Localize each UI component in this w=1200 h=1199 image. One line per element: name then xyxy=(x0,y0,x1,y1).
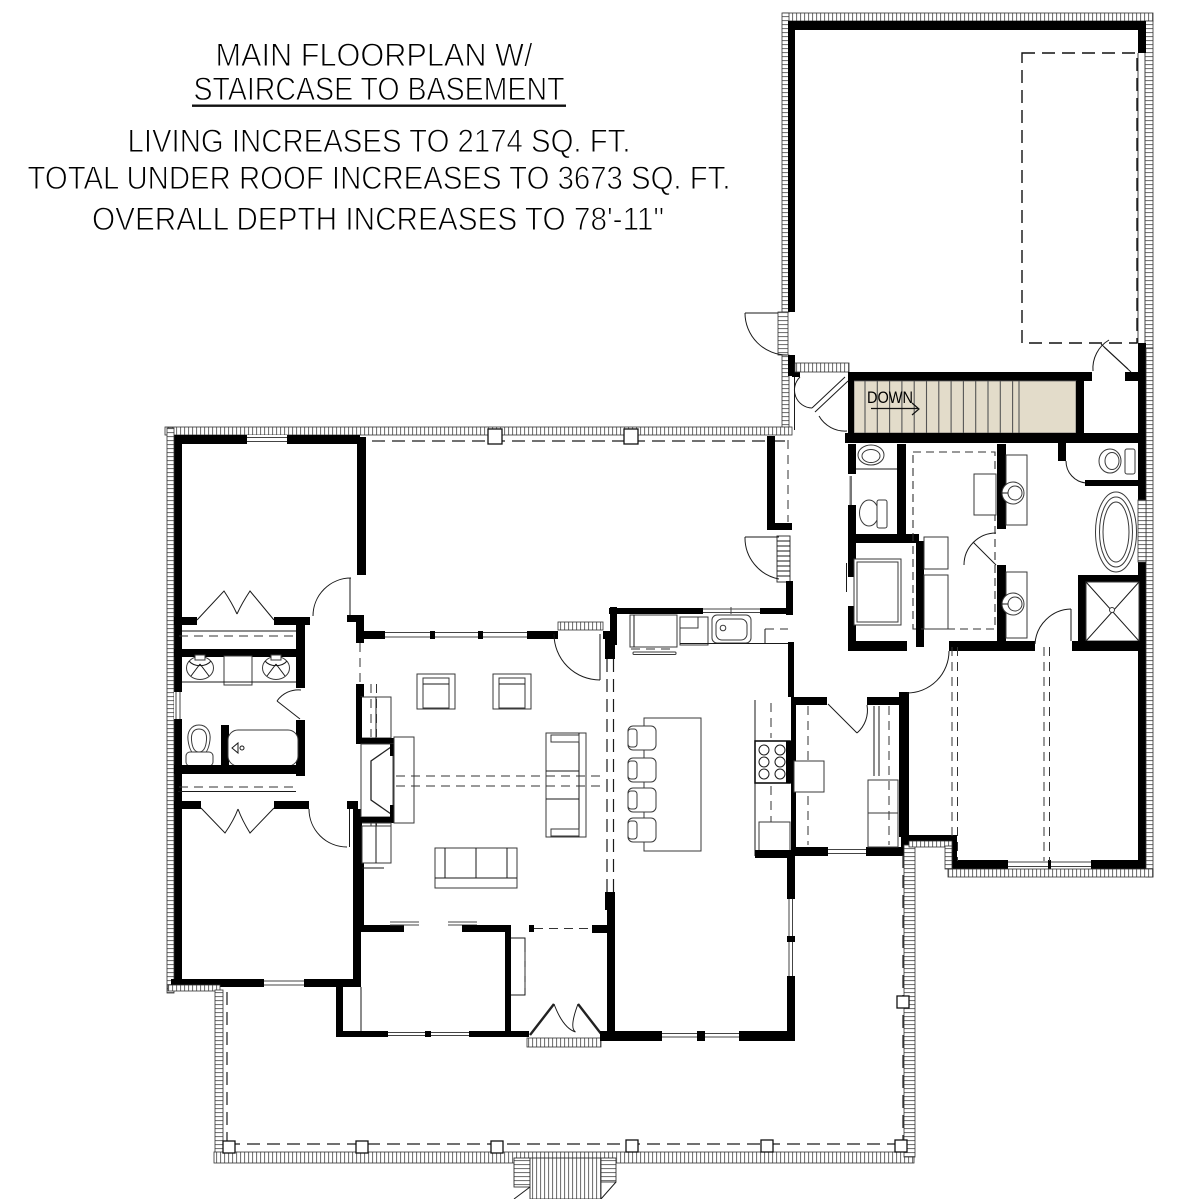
svg-text:OVERALL DEPTH INCREASES TO 78': OVERALL DEPTH INCREASES TO 78'-11" xyxy=(92,201,664,237)
svg-text:LIVING INCREASES TO 2174 SQ. F: LIVING INCREASES TO 2174 SQ. FT. xyxy=(128,123,631,159)
svg-text:MAIN FLOORPLAN W/: MAIN FLOORPLAN W/ xyxy=(216,37,533,73)
svg-text:TOTAL UNDER ROOF INCREASES TO: TOTAL UNDER ROOF INCREASES TO 3673 SQ. F… xyxy=(28,160,731,196)
svg-text:DOWN: DOWN xyxy=(867,389,913,407)
svg-text:STAIRCASE TO BASEMENT: STAIRCASE TO BASEMENT xyxy=(194,71,565,107)
